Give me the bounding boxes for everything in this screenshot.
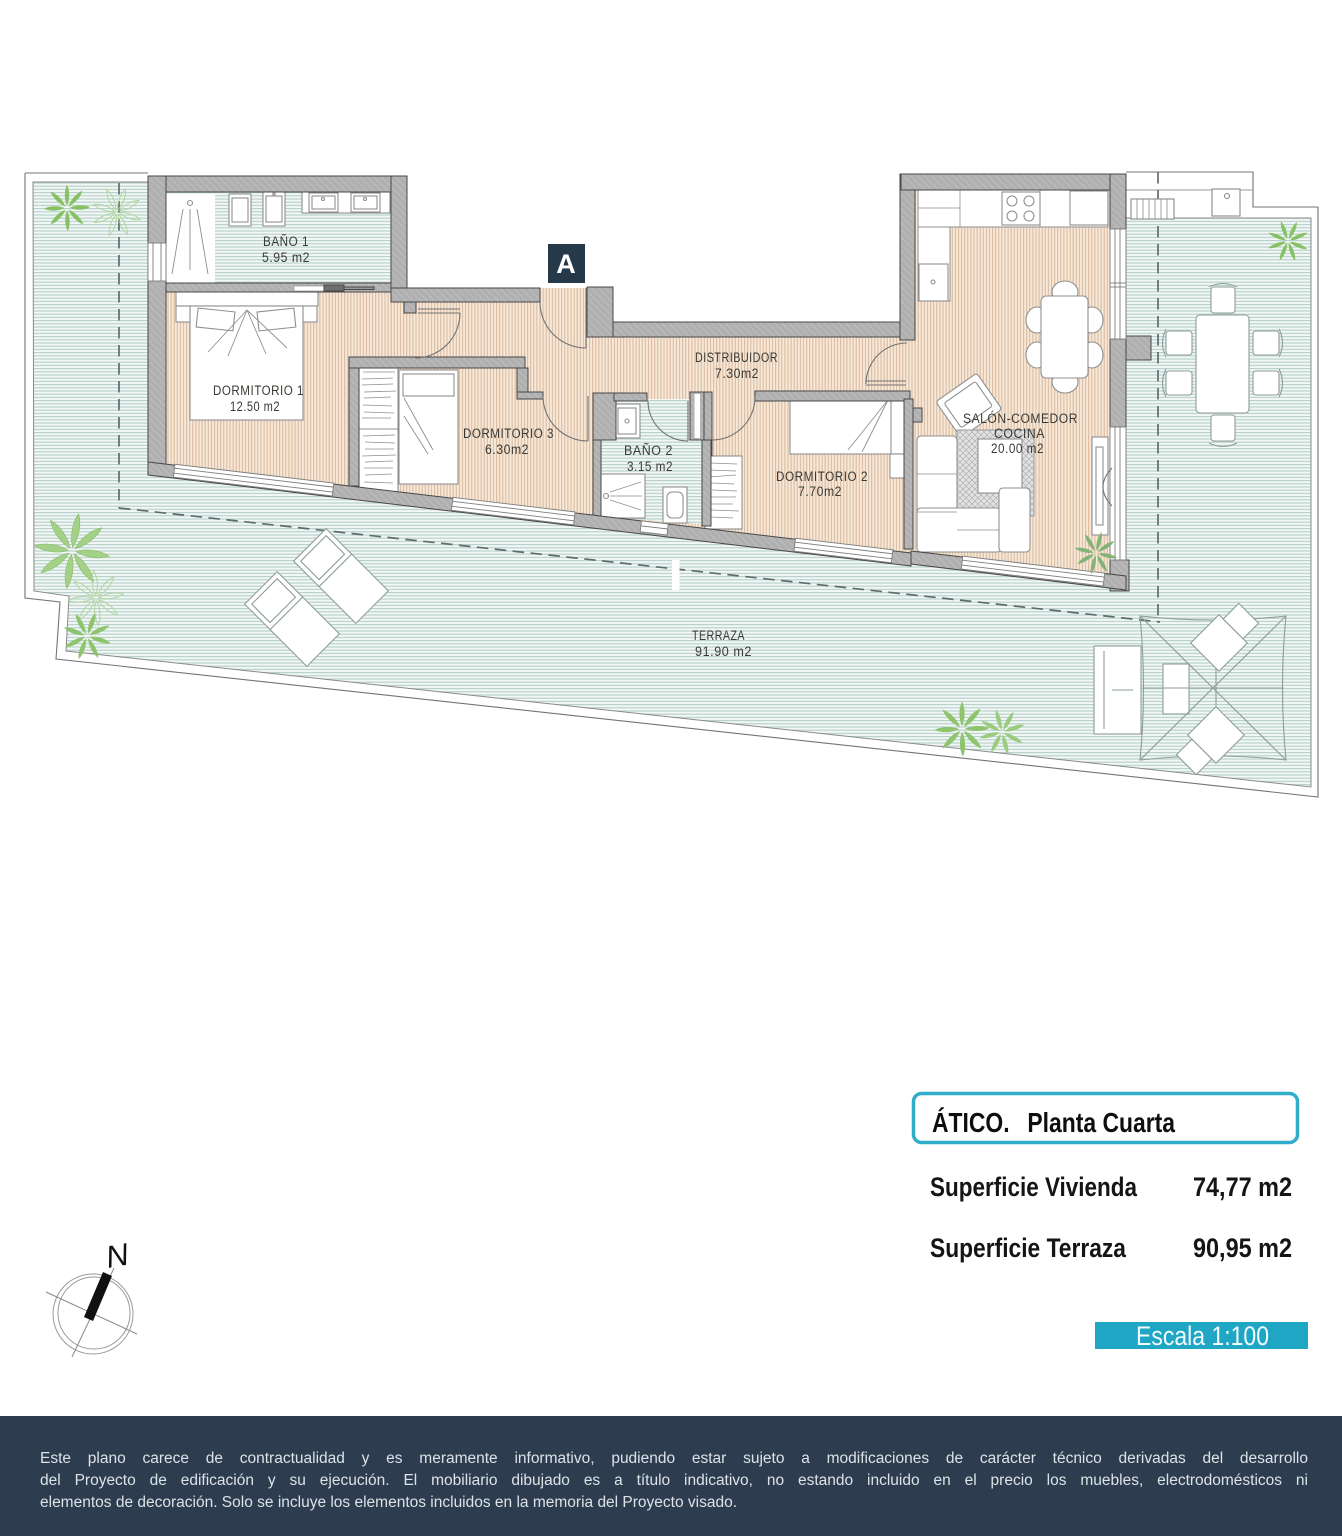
svg-text:A: A	[556, 249, 576, 279]
svg-text:Escala 1:100: Escala 1:100	[1136, 1321, 1269, 1351]
svg-text:BAÑO 1: BAÑO 1	[263, 234, 309, 249]
svg-text:BAÑO 2: BAÑO 2	[624, 443, 673, 458]
svg-text:Superficie Terraza: Superficie Terraza	[930, 1233, 1127, 1263]
svg-text:90,95 m2: 90,95 m2	[1193, 1233, 1292, 1263]
svg-text:91.90 m2: 91.90 m2	[695, 644, 752, 659]
svg-text:TERRAZA: TERRAZA	[692, 628, 745, 643]
svg-text:6.30m2: 6.30m2	[485, 442, 529, 457]
svg-text:7.30m2: 7.30m2	[715, 366, 759, 381]
svg-text:5.95 m2: 5.95 m2	[262, 250, 310, 265]
svg-text:7.70m2: 7.70m2	[798, 484, 842, 499]
svg-text:DORMITORIO 1: DORMITORIO 1	[213, 383, 304, 398]
svg-text:COCINA: COCINA	[994, 426, 1045, 441]
svg-text:DISTRIBUIDOR: DISTRIBUIDOR	[695, 350, 778, 365]
svg-text:DORMITORIO 2: DORMITORIO 2	[776, 469, 868, 484]
svg-text:74,77 m2: 74,77 m2	[1193, 1172, 1292, 1202]
svg-text:20.00 m2: 20.00 m2	[991, 441, 1044, 456]
svg-text:12.50 m2: 12.50 m2	[230, 399, 280, 414]
svg-text:3.15 m2: 3.15 m2	[627, 459, 673, 474]
svg-text:Superficie Vivienda: Superficie Vivienda	[930, 1172, 1138, 1202]
svg-text:DORMITORIO 3: DORMITORIO 3	[463, 426, 554, 441]
svg-text:ÁTICO. Planta Cuarta: ÁTICO. Planta Cuarta	[932, 1107, 1175, 1138]
svg-text:SALÓN-COMEDOR: SALÓN-COMEDOR	[963, 411, 1078, 426]
